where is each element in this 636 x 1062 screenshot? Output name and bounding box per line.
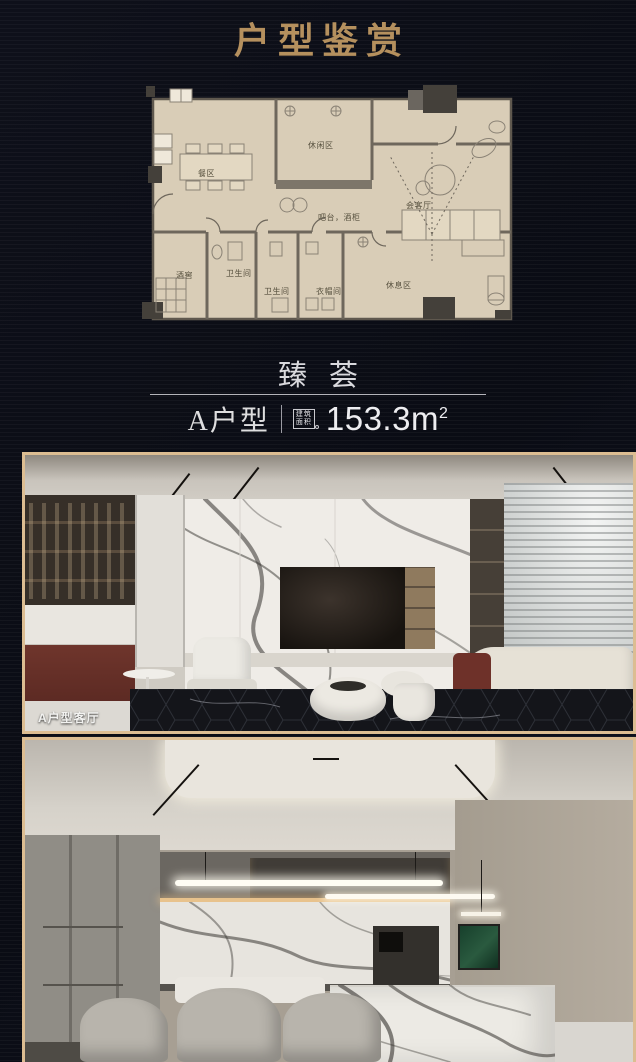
room-label-rest: 休息区 [386,280,412,291]
shelf-bottles [29,503,129,599]
window-blinds [504,483,633,673]
oven-screen [379,932,403,952]
right-shelf-column [470,499,504,663]
white-cabinet [25,605,135,645]
track-light [313,758,339,760]
room-label-bath2: 卫生间 [264,286,290,297]
area-superscript: 2 [439,405,448,422]
ceiling-cove-light [165,740,495,798]
art-mount-wire [481,860,482,912]
area-value: 153.3m2 [326,400,448,438]
living-room-scene: A户型客厅 [25,455,633,731]
divider-line [150,394,486,395]
area-label-badge: 建筑 面积 [293,409,315,429]
green-artwork [458,924,500,970]
dining-chair [80,998,168,1062]
area-label-line2: 面积 [296,419,312,427]
side-table [123,669,175,679]
dining-chair [177,988,281,1062]
living-room-photo: A户型客厅 [22,452,636,734]
picture-light [461,912,501,916]
spec-separator [281,405,282,433]
dining-chair [283,993,381,1062]
page-title: 户型鉴赏 [0,12,636,64]
white-stool [393,683,435,721]
room-label-reception: 会客厅 [406,200,432,211]
area-number: 153.3m [326,400,439,437]
room-label-bar: 吧台，酒柜 [318,212,361,223]
room-label-dining: 餐区 [198,168,215,179]
room-label-cellar: 酒窖 [176,270,193,281]
room-label-bath1: 卫生间 [226,268,252,279]
pendant-wire [205,852,206,880]
interior-door [135,495,185,667]
poster-page: 户型鉴赏 [0,0,636,1062]
linear-pendant-light [175,880,443,886]
pendant-wire [415,852,416,880]
tv-panel [280,567,405,649]
coffee-table-tray [330,681,366,691]
unit-spec-row: A户型 建筑 面积 153.3m2 [0,399,636,439]
badge-dot [315,425,319,429]
linear-pendant-light [325,894,495,899]
kitchen-scene [25,740,633,1062]
maroon-cabinet [25,645,135,703]
kitchen-photo [22,737,636,1062]
unit-name: 臻荟 [0,352,636,394]
floorplan-panel: 休闲区 餐区 吧台，酒柜 会客厅 酒窖 卫生间 卫生间 衣帽间 休息区 [140,84,524,330]
room-label-leisure: 休闲区 [308,140,334,151]
unit-model: A户型 [188,399,270,439]
photo-caption: A户型客厅 [38,709,100,726]
area-label-line1: 建筑 [296,411,312,419]
room-label-cloak: 衣帽间 [316,286,342,297]
niche-shelves [405,567,435,649]
